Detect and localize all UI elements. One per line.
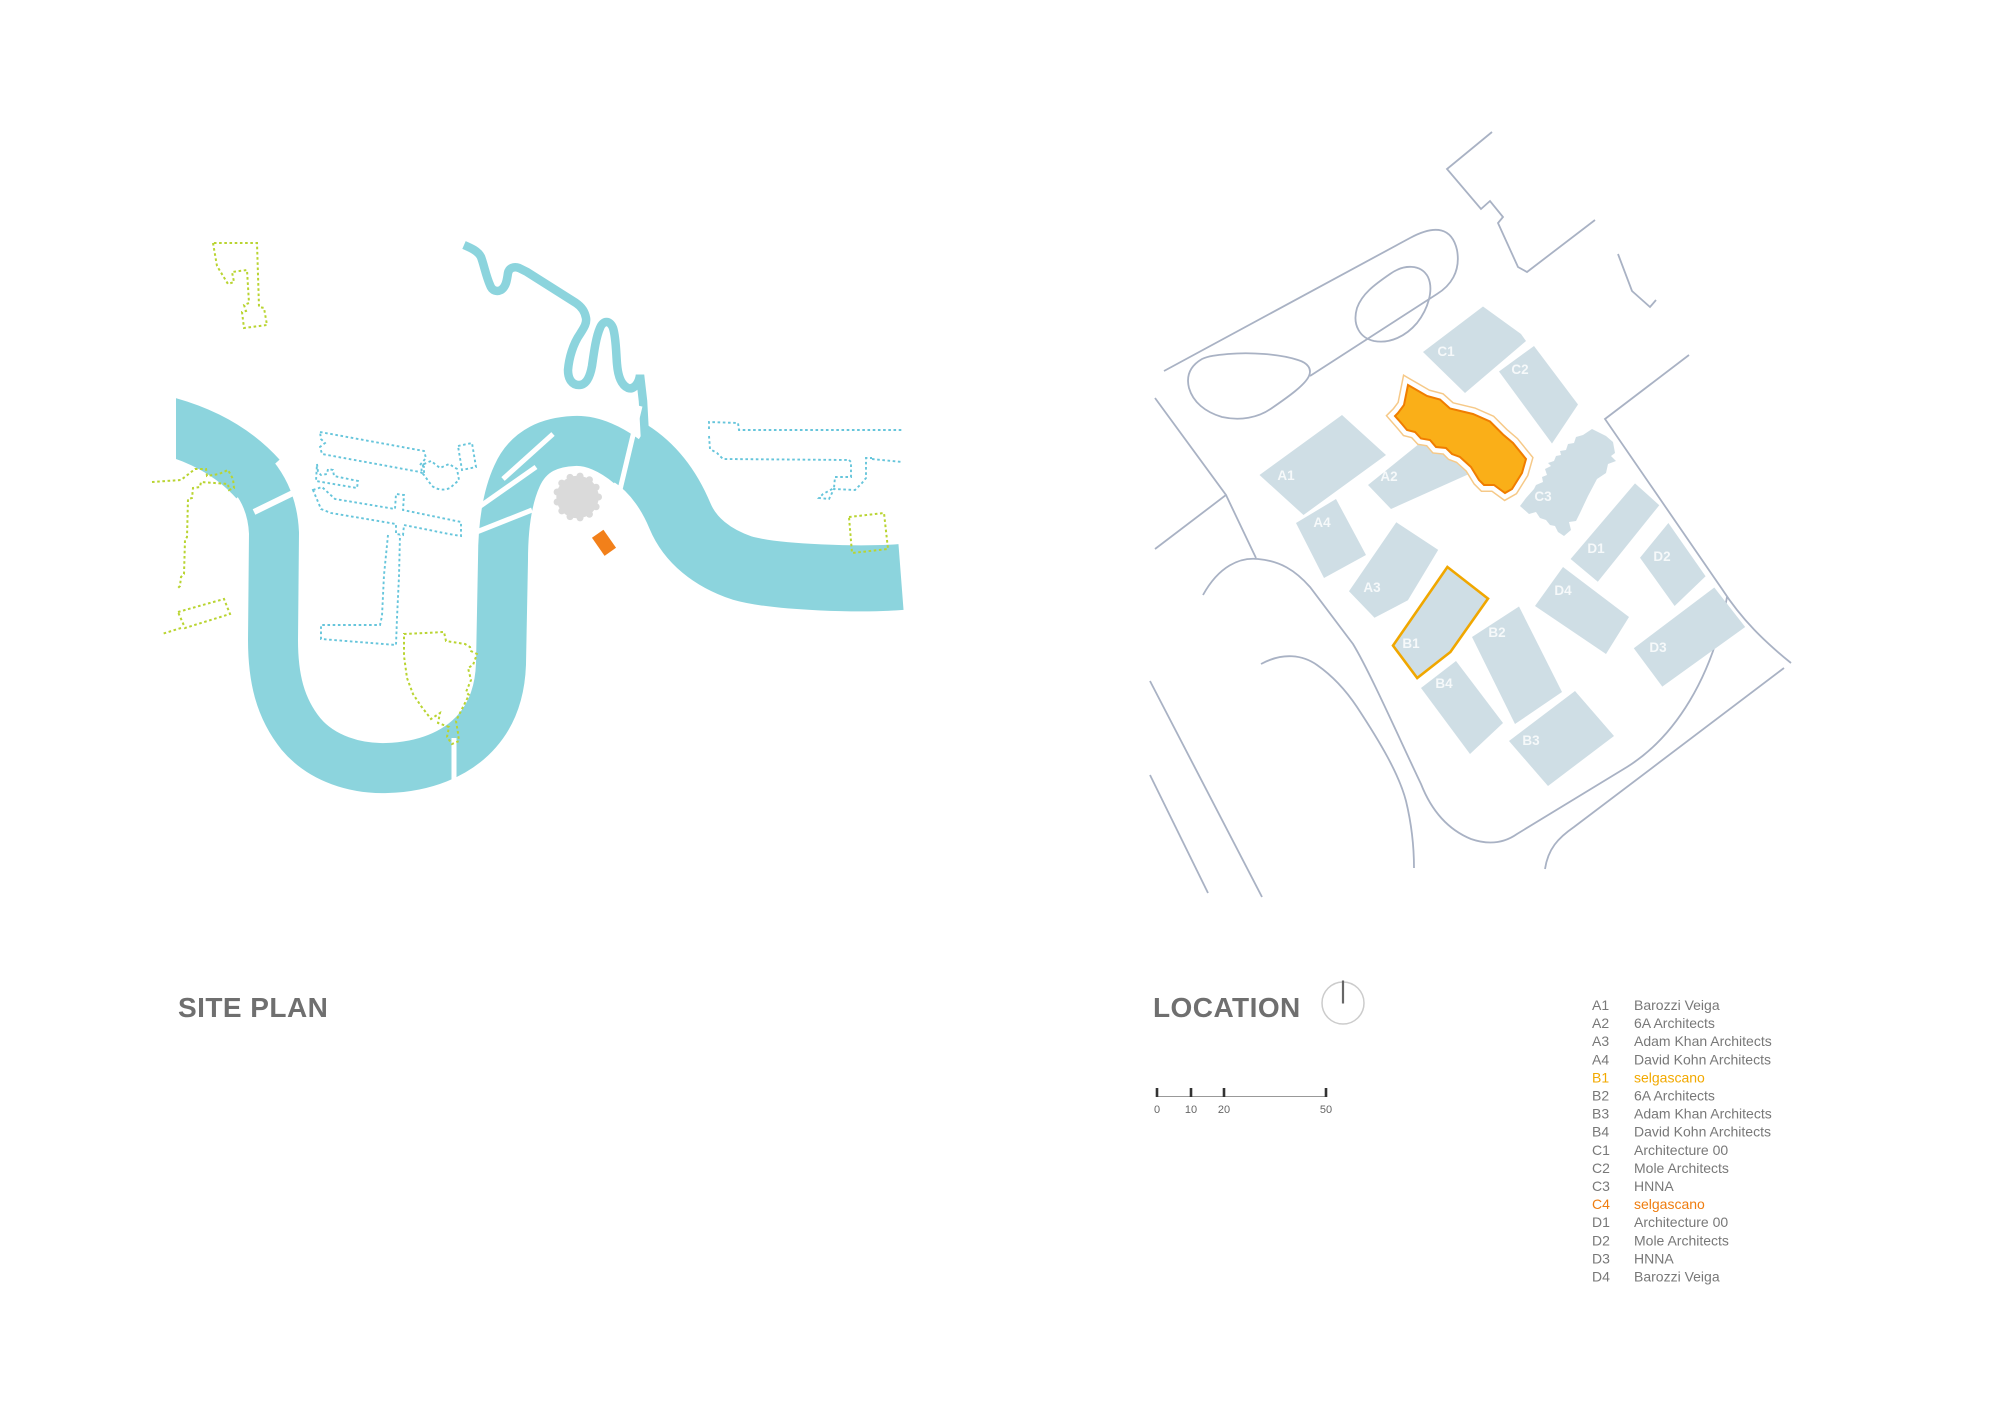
svg-text:David Kohn Architects: David Kohn Architects <box>1634 1051 1771 1067</box>
svg-text:A2: A2 <box>1592 1015 1609 1031</box>
svg-text:Architecture 00: Architecture 00 <box>1634 1142 1728 1158</box>
svg-text:B1: B1 <box>1592 1069 1609 1085</box>
svg-text:C3: C3 <box>1534 489 1552 504</box>
svg-text:Barozzi Veiga: Barozzi Veiga <box>1634 997 1720 1013</box>
svg-text:B1: B1 <box>1402 636 1420 651</box>
svg-text:Adam Khan Architects: Adam Khan Architects <box>1634 1033 1772 1049</box>
svg-text:A4: A4 <box>1592 1051 1609 1067</box>
svg-text:D2: D2 <box>1592 1232 1610 1248</box>
svg-text:SITE PLAN: SITE PLAN <box>178 992 328 1023</box>
svg-text:HNNA: HNNA <box>1634 1250 1674 1266</box>
svg-text:B3: B3 <box>1522 733 1540 748</box>
svg-text:B4: B4 <box>1592 1124 1609 1140</box>
svg-text:D3: D3 <box>1592 1250 1610 1266</box>
svg-text:Mole Architects: Mole Architects <box>1634 1160 1729 1176</box>
svg-text:10: 10 <box>1185 1104 1197 1116</box>
svg-text:C2: C2 <box>1592 1160 1610 1176</box>
svg-text:6A Architects: 6A Architects <box>1634 1015 1715 1031</box>
svg-text:B4: B4 <box>1435 676 1453 691</box>
svg-text:6A Architects: 6A Architects <box>1634 1088 1715 1104</box>
svg-text:Architecture 00: Architecture 00 <box>1634 1214 1728 1230</box>
svg-text:20: 20 <box>1218 1104 1230 1116</box>
svg-text:D1: D1 <box>1592 1214 1610 1230</box>
svg-text:D1: D1 <box>1587 541 1605 556</box>
svg-text:C1: C1 <box>1437 344 1455 359</box>
svg-text:LOCATION: LOCATION <box>1153 992 1301 1023</box>
svg-text:A1: A1 <box>1592 997 1609 1013</box>
svg-text:B2: B2 <box>1488 625 1505 640</box>
svg-text:A3: A3 <box>1592 1033 1609 1049</box>
svg-text:A4: A4 <box>1313 515 1331 530</box>
svg-text:A1: A1 <box>1277 468 1295 483</box>
svg-text:A2: A2 <box>1380 469 1397 484</box>
svg-text:B2: B2 <box>1592 1088 1609 1104</box>
svg-text:Barozzi Veiga: Barozzi Veiga <box>1634 1269 1720 1285</box>
svg-text:selgascano: selgascano <box>1634 1196 1705 1212</box>
svg-text:selgascano: selgascano <box>1634 1069 1705 1085</box>
svg-text:B3: B3 <box>1592 1106 1609 1122</box>
svg-text:D2: D2 <box>1653 549 1670 564</box>
svg-text:HNNA: HNNA <box>1634 1178 1674 1194</box>
svg-text:C3: C3 <box>1592 1178 1610 1194</box>
svg-text:D4: D4 <box>1554 583 1572 598</box>
svg-text:50: 50 <box>1320 1104 1332 1116</box>
svg-text:A3: A3 <box>1363 580 1381 595</box>
svg-text:D3: D3 <box>1649 640 1667 655</box>
svg-text:D4: D4 <box>1592 1269 1610 1285</box>
svg-text:C4: C4 <box>1592 1196 1610 1212</box>
svg-text:Mole Architects: Mole Architects <box>1634 1232 1729 1248</box>
svg-text:0: 0 <box>1154 1104 1160 1116</box>
svg-text:C1: C1 <box>1592 1142 1610 1158</box>
svg-text:C2: C2 <box>1511 362 1528 377</box>
svg-text:David Kohn Architects: David Kohn Architects <box>1634 1124 1771 1140</box>
svg-text:Adam Khan Architects: Adam Khan Architects <box>1634 1106 1772 1122</box>
